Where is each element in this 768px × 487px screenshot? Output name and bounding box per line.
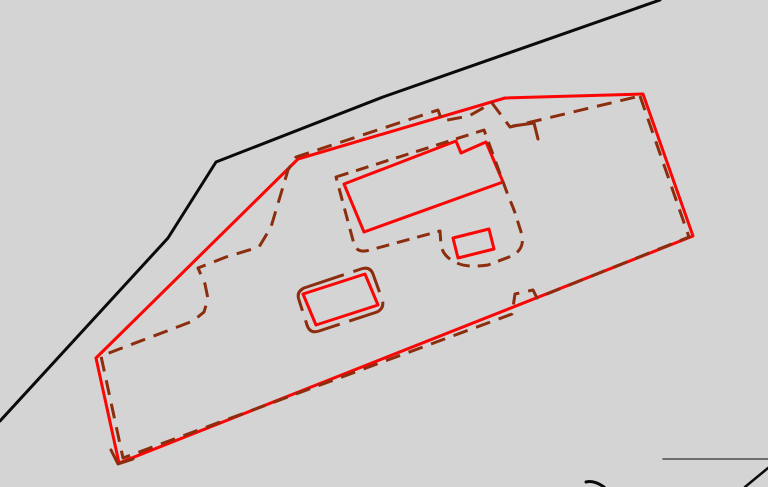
- map-canvas: [0, 0, 768, 487]
- annex-square-red: [453, 229, 494, 258]
- garage-old-dashed: [298, 268, 383, 332]
- boundary-corner-mark-brown: [513, 123, 538, 139]
- map-viewport[interactable]: [0, 0, 768, 487]
- garage-red: [303, 274, 378, 325]
- parcel-boundary-red: [96, 94, 693, 463]
- diagonal-mark-bottom-right: [745, 468, 768, 487]
- parcel-boundary-old-dashed: [101, 96, 689, 458]
- road-edge-line: [0, 0, 660, 421]
- small-mark-bottom-center: [586, 482, 604, 487]
- main-building-red: [344, 141, 503, 232]
